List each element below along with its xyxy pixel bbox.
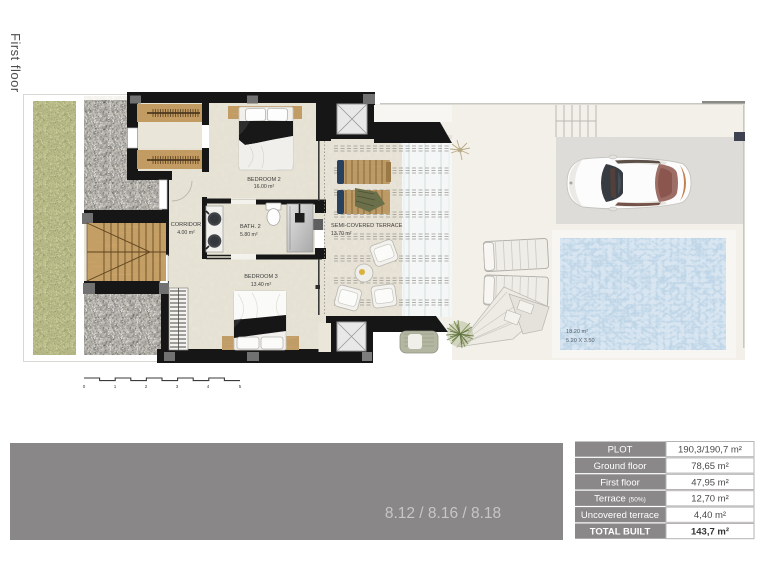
svg-text:4: 4	[207, 384, 210, 389]
svg-text:78,65 m²: 78,65 m²	[691, 461, 729, 472]
svg-text:47,95 m²: 47,95 m²	[691, 477, 729, 488]
svg-text:13.40 m²: 13.40 m²	[251, 282, 272, 288]
svg-text:12,70 m²: 12,70 m²	[691, 494, 729, 505]
svg-text:BATH. 2: BATH. 2	[240, 224, 261, 230]
svg-text:5.80 m²: 5.80 m²	[240, 232, 258, 238]
svg-text:18.20 m²: 18.20 m²	[566, 329, 588, 335]
svg-text:Uncovered terrace: Uncovered terrace	[581, 510, 659, 521]
svg-text:First floor: First floor	[600, 477, 640, 488]
svg-text:4.00 m²: 4.00 m²	[177, 230, 195, 236]
svg-text:190,3/190,7 m²: 190,3/190,7 m²	[678, 445, 742, 456]
svg-text:First floor: First floor	[8, 33, 23, 93]
svg-text:4,40 m²: 4,40 m²	[694, 510, 726, 521]
svg-text:3: 3	[176, 384, 179, 389]
svg-text:SEMI-COVERED TERRACE: SEMI-COVERED TERRACE	[331, 223, 403, 229]
svg-text:1: 1	[114, 384, 117, 389]
svg-text:2: 2	[145, 384, 148, 389]
svg-text:5: 5	[239, 384, 242, 389]
svg-text:Ground floor: Ground floor	[594, 461, 647, 472]
svg-text:BEDROOM 2: BEDROOM 2	[247, 177, 281, 183]
svg-text:BEDROOM 3: BEDROOM 3	[244, 274, 278, 280]
svg-text:CORRIDOR: CORRIDOR	[171, 222, 201, 228]
svg-text:143,7 m²: 143,7 m²	[691, 527, 729, 538]
svg-text:13.70 m²: 13.70 m²	[331, 231, 352, 237]
svg-text:8.12 / 8.16 / 8.18: 8.12 / 8.16 / 8.18	[385, 505, 501, 522]
svg-text:TOTAL BUILT: TOTAL BUILT	[590, 527, 651, 538]
svg-text:PLOT: PLOT	[608, 445, 633, 456]
svg-text:5.20 X 3.50: 5.20 X 3.50	[566, 338, 595, 344]
svg-text:0: 0	[83, 384, 86, 389]
svg-text:16.00 m²: 16.00 m²	[254, 184, 275, 190]
